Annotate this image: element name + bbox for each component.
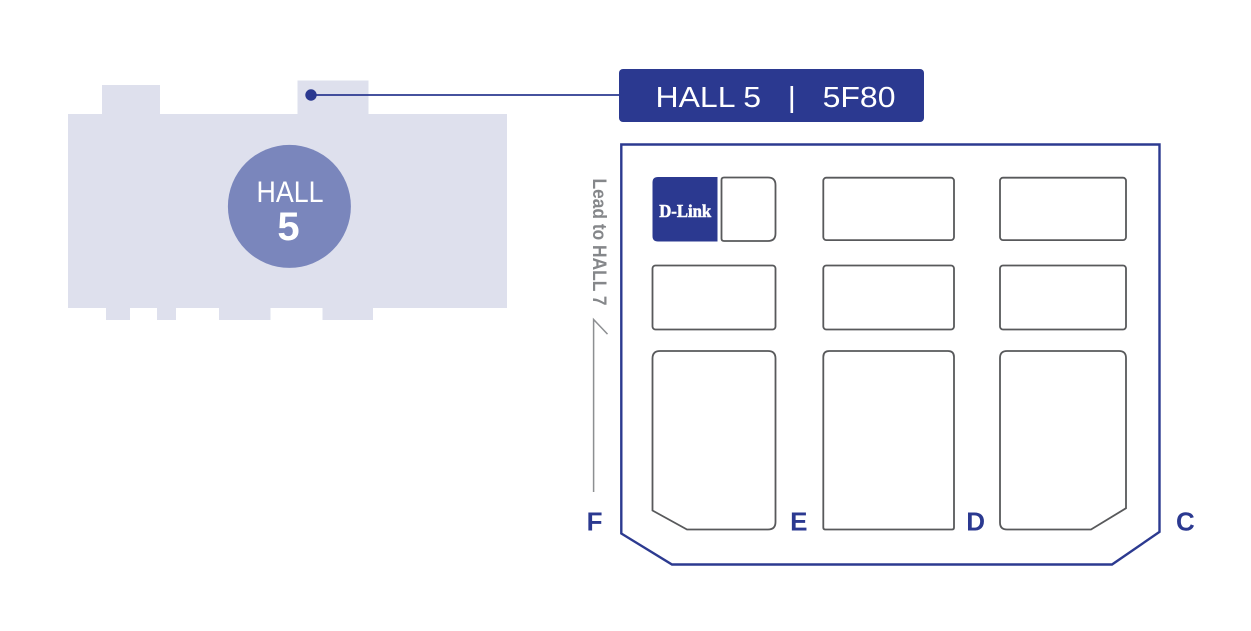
svg-text:C: C [1176, 507, 1195, 537]
svg-text:F: F [587, 507, 603, 537]
svg-text:D: D [966, 507, 985, 537]
svg-text:D-Link: D-Link [659, 201, 711, 221]
svg-text:HALL 5 | 5F80: HALL 5 | 5F80 [656, 82, 896, 114]
svg-text:E: E [790, 507, 807, 537]
svg-text:Lead to HALL 7: Lead to HALL 7 [588, 179, 609, 306]
svg-text:5: 5 [277, 205, 299, 249]
